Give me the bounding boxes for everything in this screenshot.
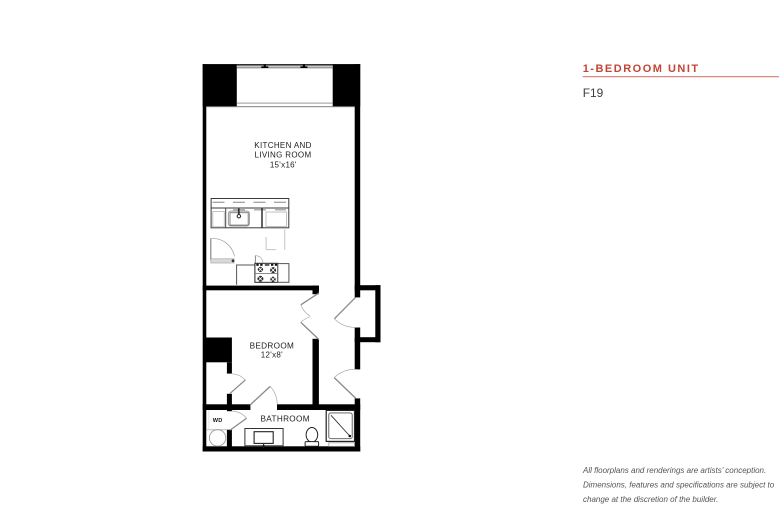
svg-text:All floorplans and renderings: All floorplans and renderings are artist…: [582, 466, 766, 475]
svg-text:KITCHEN AND: KITCHEN AND: [254, 141, 311, 150]
svg-text:Dimensions, features and speci: Dimensions, features and specifications …: [583, 480, 775, 489]
svg-text:12'x8': 12'x8': [261, 350, 283, 359]
svg-text:change at the discretion of th: change at the discretion of the builder.: [583, 495, 718, 504]
svg-text:LIVING ROOM: LIVING ROOM: [255, 150, 312, 159]
svg-text:15'x16': 15'x16': [270, 161, 297, 170]
svg-text:1-BEDROOM UNIT: 1-BEDROOM UNIT: [583, 63, 700, 75]
svg-text:BATHROOM: BATHROOM: [261, 414, 310, 423]
svg-text:BEDROOM: BEDROOM: [250, 342, 295, 351]
svg-text:F19: F19: [583, 86, 604, 100]
svg-text:WD: WD: [213, 418, 223, 424]
